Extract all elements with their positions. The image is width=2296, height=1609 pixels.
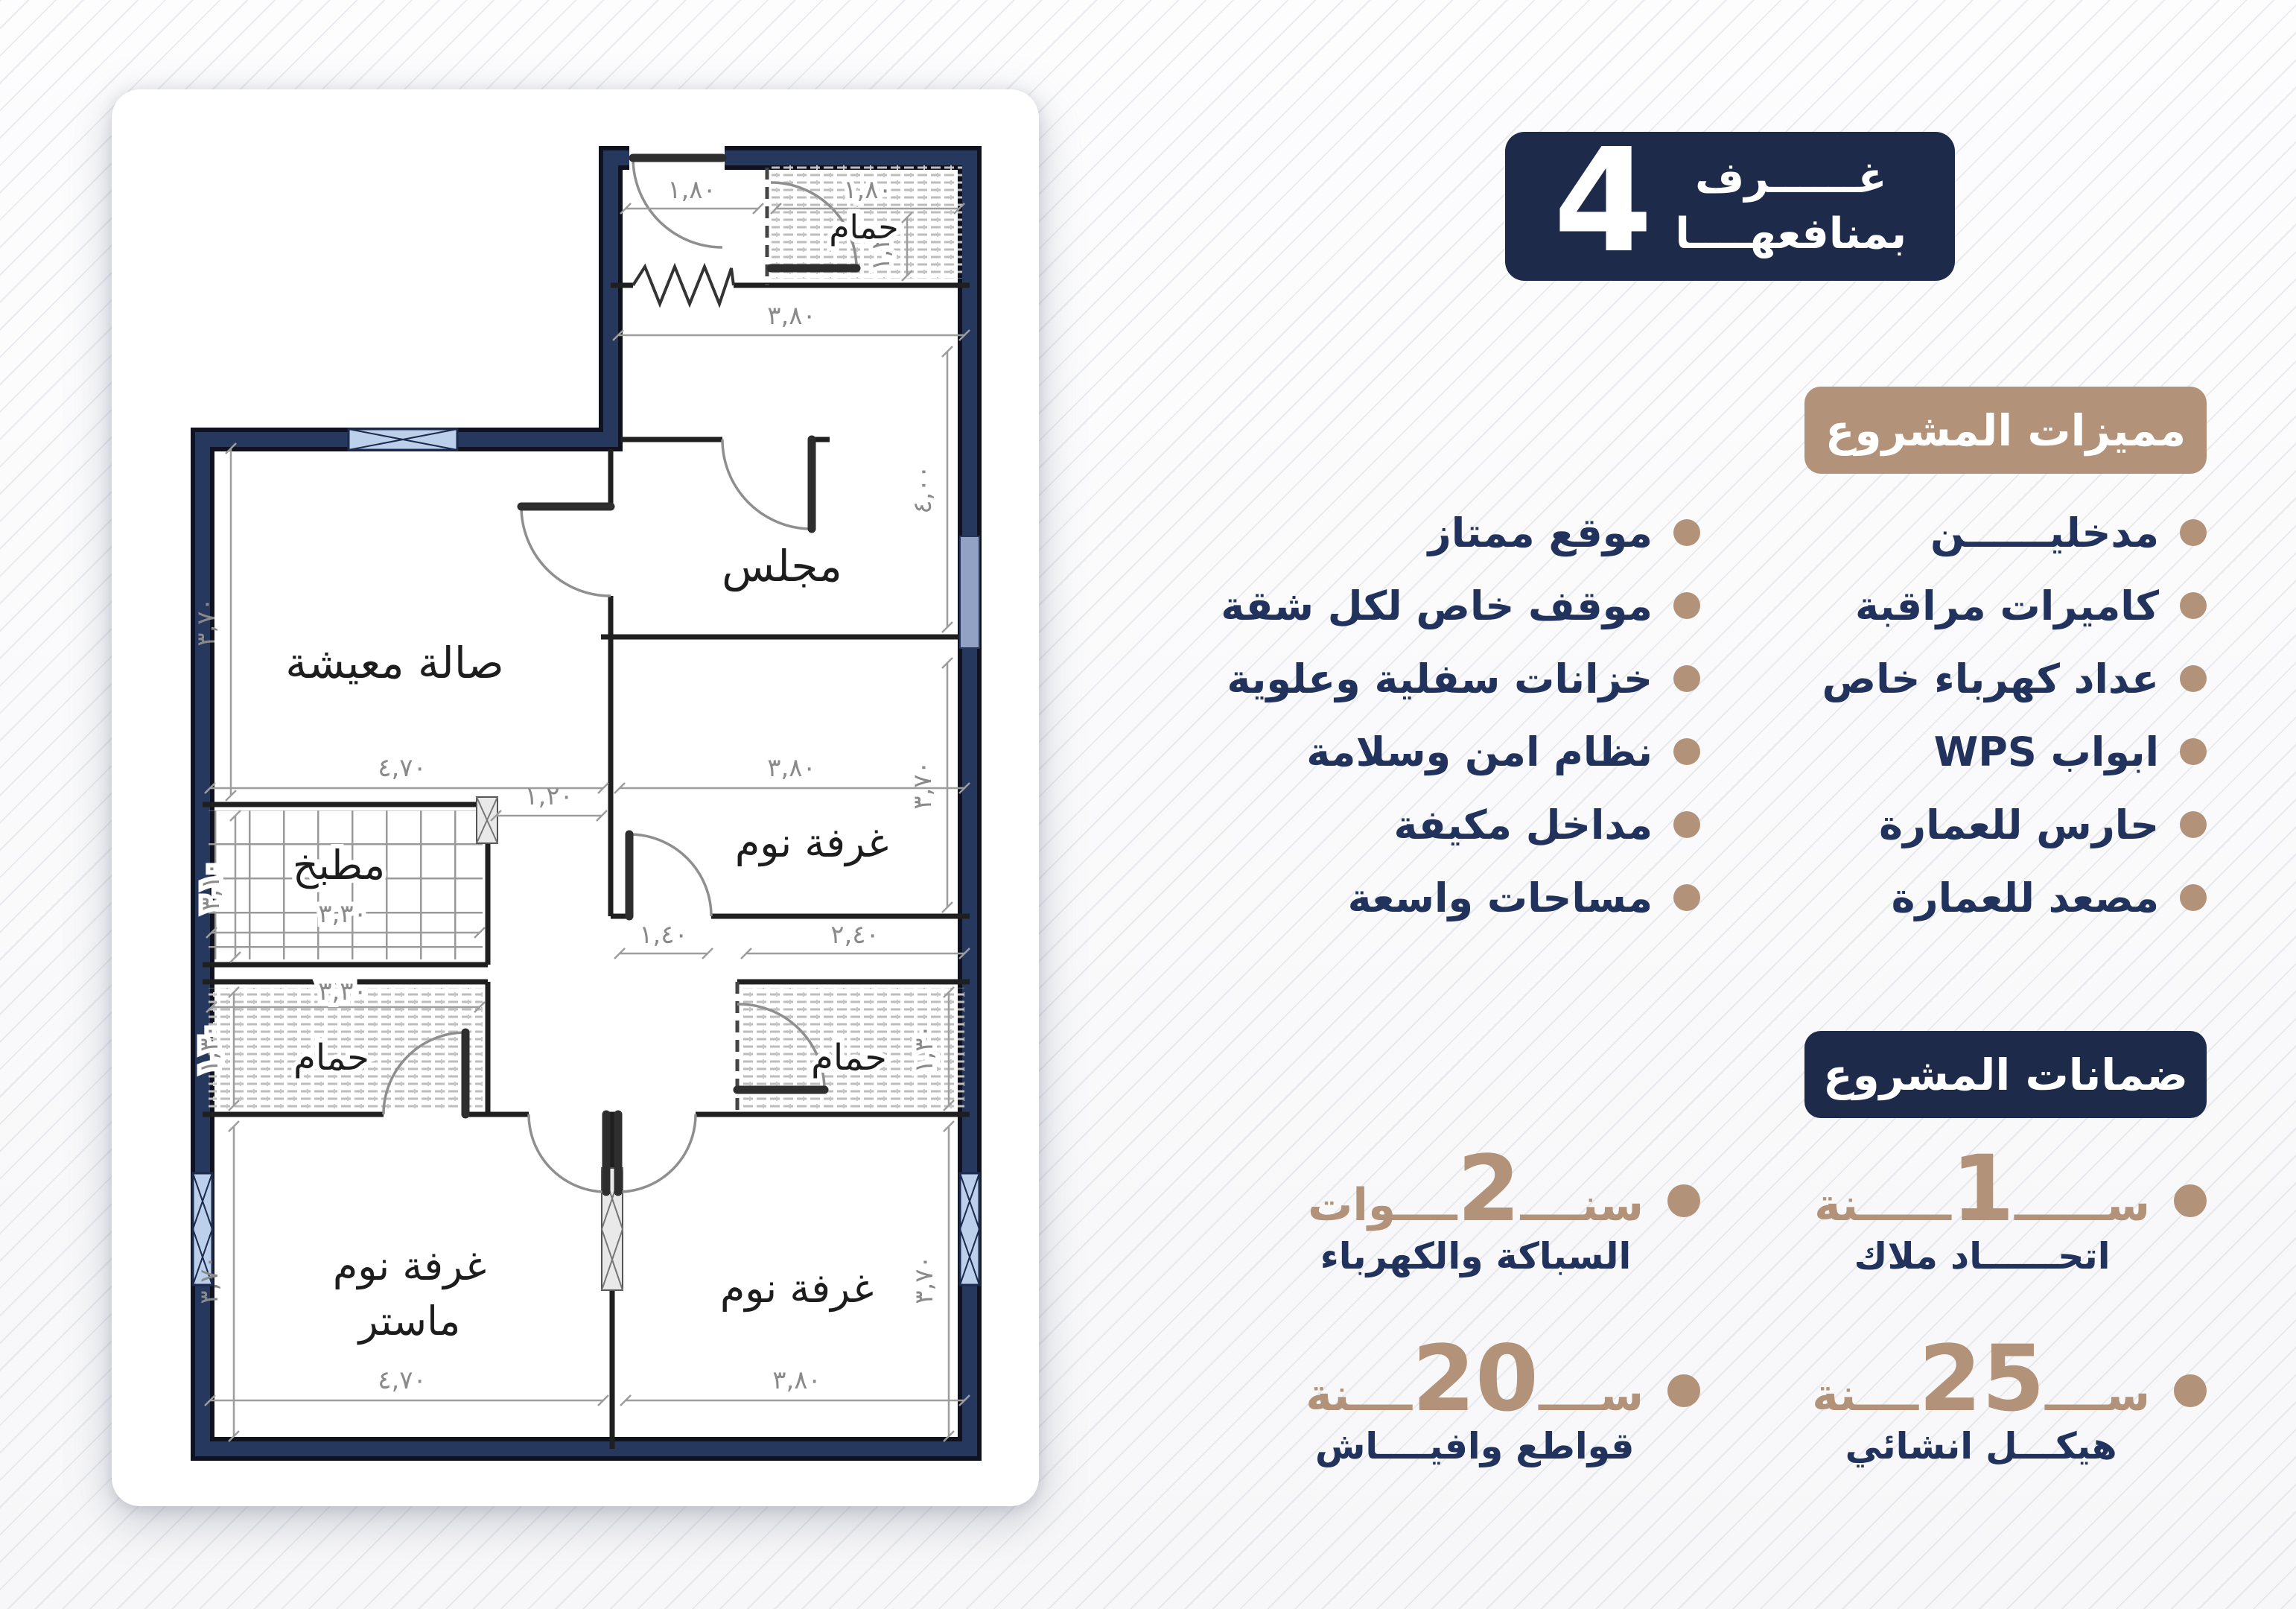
dim-bath-left-width: ٣,٣٠ (318, 977, 367, 1006)
guarantees-title-text: ضمانات المشروع (1823, 1050, 2188, 1100)
bullet-icon (1673, 665, 1700, 692)
feature-label: خزانات سفلية وعلوية (1227, 656, 1653, 702)
dim-bath-right-height: ١,٣٠ (909, 1024, 939, 1073)
duration-number: 2 (1457, 1153, 1521, 1226)
guarantees-list: ســــــ1ــــــنة اتحــــــاد ملاك سنــــ… (1112, 1153, 2207, 1467)
duration-suffix: ــــــنة (1814, 1183, 1951, 1228)
feature-item: مصعد للعمارة (1760, 861, 2207, 934)
features-list: مدخليــــــن موقع ممتاز كاميرات مراقبة م… (1112, 496, 2207, 934)
dim-master-height: ٣,٧٠ (194, 1255, 224, 1304)
duration-suffix: ــــنة (1812, 1373, 1918, 1418)
guarantee-duration: ســــ25ــــنة (1812, 1343, 2150, 1418)
dim-living-height: ٣,٧٠ (191, 597, 221, 647)
dim-corridor-top: ١,٢٠ (524, 781, 573, 811)
bullet-icon (2180, 738, 2207, 765)
window-bedroom-icon (960, 1173, 979, 1285)
bullet-icon (2180, 811, 2207, 838)
duration-prefix: ســــ (1539, 1373, 1644, 1418)
guarantee-item: ســــ25ــــنة هيكـــل انشائي (1760, 1343, 2207, 1467)
feature-item: ابواب WPS (1760, 715, 2207, 788)
guarantee-duration: سنــــ2ــــوات (1308, 1153, 1644, 1228)
bullet-icon (2180, 519, 2207, 546)
dim-corridor-bottom: ١,٤٠ (639, 920, 688, 950)
room-bed-br-label: غرفة نوم (720, 1265, 874, 1312)
duration-suffix: ــــوات (1308, 1183, 1457, 1228)
feature-label: عداد كهرباء خاص (1822, 656, 2159, 702)
dim-majlis-height: ٤,٠٠ (908, 465, 938, 514)
duration-number: 1 (1951, 1153, 2014, 1226)
bullet-icon (2180, 884, 2207, 911)
dim-bath-right-width: ٢,٤٠ (830, 920, 880, 950)
feature-label: حارس للعمارة (1879, 802, 2159, 848)
guarantee-item: سنــــ2ــــوات السباكة والكهرباء (1112, 1153, 1700, 1278)
guarantee-content: ســــ20ــــنة قواطع وافيــــاش (1306, 1343, 1644, 1467)
dim-majlis-width: ٣,٨٠ (767, 301, 816, 331)
feature-label: موقف خاص لكل شقة (1221, 583, 1653, 629)
dim-living-width: ٤,٧٠ (378, 753, 427, 783)
room-bath-top-label: حمام (829, 209, 898, 247)
feature-item: مساحات واسعة (1112, 861, 1700, 934)
rooms-count: 4 (1554, 141, 1653, 262)
bullet-icon (2180, 592, 2207, 619)
duration-number: 20 (1412, 1343, 1539, 1416)
window-majlis-icon (960, 536, 979, 648)
feature-label: مساحات واسعة (1348, 875, 1653, 921)
feature-item: مدخليــــــن (1760, 496, 2207, 569)
feature-label: مدخليــــــن (1930, 510, 2159, 556)
unit-type-badge: 4 غــــــرف بمنافعهــــا (1505, 132, 1955, 281)
room-master-label-line1: غرفة نوم (333, 1243, 486, 1289)
guarantees-title-badge: ضمانات المشروع (1804, 1031, 2207, 1118)
guarantee-item: ســــ20ــــنة قواطع وافيــــاش (1112, 1343, 1700, 1467)
dim-bath-top-width: ١,٨٠ (843, 175, 892, 205)
dim-bath-left-height: ١,٣٠ (194, 1024, 224, 1073)
bullet-icon (2174, 1374, 2207, 1407)
guarantee-label: قواطع وافيــــاش (1315, 1425, 1635, 1467)
bullet-icon (1673, 884, 1700, 911)
dim-kitchen-width: ٣,٣٠ (318, 899, 367, 929)
duration-number: 25 (1918, 1343, 2045, 1416)
features-title-text: مميزات المشروع (1825, 405, 2186, 456)
guarantee-item: ســــــ1ــــــنة اتحــــــاد ملاك (1760, 1153, 2207, 1278)
duration-suffix: ــــنة (1306, 1373, 1412, 1418)
guarantee-label: اتحــــــاد ملاك (1854, 1235, 2111, 1278)
dim-entrance-width: ١,٨٠ (667, 175, 716, 205)
room-bath-left-label: حمام (293, 1037, 369, 1079)
guarantee-content: سنــــ2ــــوات السباكة والكهرباء (1308, 1153, 1644, 1278)
bullet-icon (1673, 592, 1700, 619)
dim-bed-mid-height: ٣,٧٠ (908, 761, 938, 810)
room-majlis-label: مجلس (722, 541, 842, 591)
bullet-icon (1673, 811, 1700, 838)
feature-label: مداخل مكيفة (1393, 802, 1653, 848)
rooms-word: غــــــرف (1675, 150, 1907, 206)
bullet-icon (2174, 1184, 2207, 1217)
room-kitchen-label: مطبخ (293, 842, 385, 889)
feature-item: مداخل مكيفة (1112, 788, 1700, 861)
dim-bed-mid-width: ٣,٨٠ (767, 753, 816, 783)
guarantee-duration: ســــــ1ــــــنة (1814, 1153, 2150, 1228)
guarantee-content: ســــــ1ــــــنة اتحــــــاد ملاك (1814, 1153, 2150, 1278)
column-kitchen-icon (477, 797, 497, 843)
flyer-canvas: ١,٨٠ ١,٨٠ ١,٢٠ ٣,٨٠ ٤,٠٠ ٣,٧٠ ٤,٧٠ ٣,٨٠ … (0, 0, 2296, 1609)
feature-item: كاميرات مراقبة (1760, 569, 2207, 642)
bullet-icon (1673, 738, 1700, 765)
feature-item: خزانات سفلية وعلوية (1112, 642, 1700, 715)
dim-kitchen-height: ٣,١٠ (196, 862, 226, 911)
guarantee-label: هيكـــل انشائي (1845, 1425, 2117, 1467)
bullet-icon (2180, 665, 2207, 692)
window-top-icon (349, 429, 457, 450)
duration-prefix: ســــــ (2014, 1183, 2150, 1228)
guarantee-duration: ســــ20ــــنة (1306, 1343, 1644, 1418)
feature-label: موقع ممتاز (1428, 510, 1653, 556)
room-master-label-line2: ماستر (357, 1298, 461, 1345)
feature-item: عداد كهرباء خاص (1760, 642, 2207, 715)
room-bed-mid-label: غرفة نوم (735, 819, 888, 866)
amenities-word: بمنافعهــــا (1675, 206, 1907, 262)
room-living-label: صالة معيشة (285, 638, 504, 688)
feature-item: موقع ممتاز (1112, 496, 1700, 569)
feature-label: ابواب WPS (1934, 729, 2159, 775)
room-bath-right-label: حمام (811, 1037, 887, 1079)
dim-master-width: ٤,٧٠ (378, 1365, 427, 1395)
bullet-icon (1673, 519, 1700, 546)
feature-item: موقف خاص لكل شقة (1112, 569, 1700, 642)
feature-label: نظام امن وسلامة (1306, 729, 1653, 775)
feature-item: نظام امن وسلامة (1112, 715, 1700, 788)
features-title-badge: مميزات المشروع (1804, 387, 2207, 474)
bullet-icon (1667, 1374, 1700, 1407)
dim-bed-br-width: ٣,٨٠ (772, 1365, 821, 1395)
feature-item: حارس للعمارة (1760, 788, 2207, 861)
duration-prefix: سنــــ (1520, 1183, 1644, 1228)
floor-plan-drawing: ١,٨٠ ١,٨٠ ١,٢٠ ٣,٨٠ ٤,٠٠ ٣,٧٠ ٤,٧٠ ٣,٨٠ … (112, 89, 1039, 1506)
guarantee-label: السباكة والكهرباء (1320, 1235, 1632, 1278)
guarantee-content: ســــ25ــــنة هيكـــل انشائي (1812, 1343, 2150, 1467)
rooms-count-caption: غــــــرف بمنافعهــــا (1675, 150, 1907, 262)
feature-label: مصعد للعمارة (1892, 875, 2159, 921)
duration-prefix: ســــ (2045, 1373, 2150, 1418)
dim-bed-br-height: ٣,٧٠ (909, 1255, 939, 1304)
feature-label: كاميرات مراقبة (1855, 583, 2159, 629)
floor-plan-card: ١,٨٠ ١,٨٠ ١,٢٠ ٣,٨٠ ٤,٠٠ ٣,٧٠ ٤,٧٠ ٣,٨٠ … (112, 89, 1039, 1506)
bullet-icon (1667, 1184, 1700, 1217)
